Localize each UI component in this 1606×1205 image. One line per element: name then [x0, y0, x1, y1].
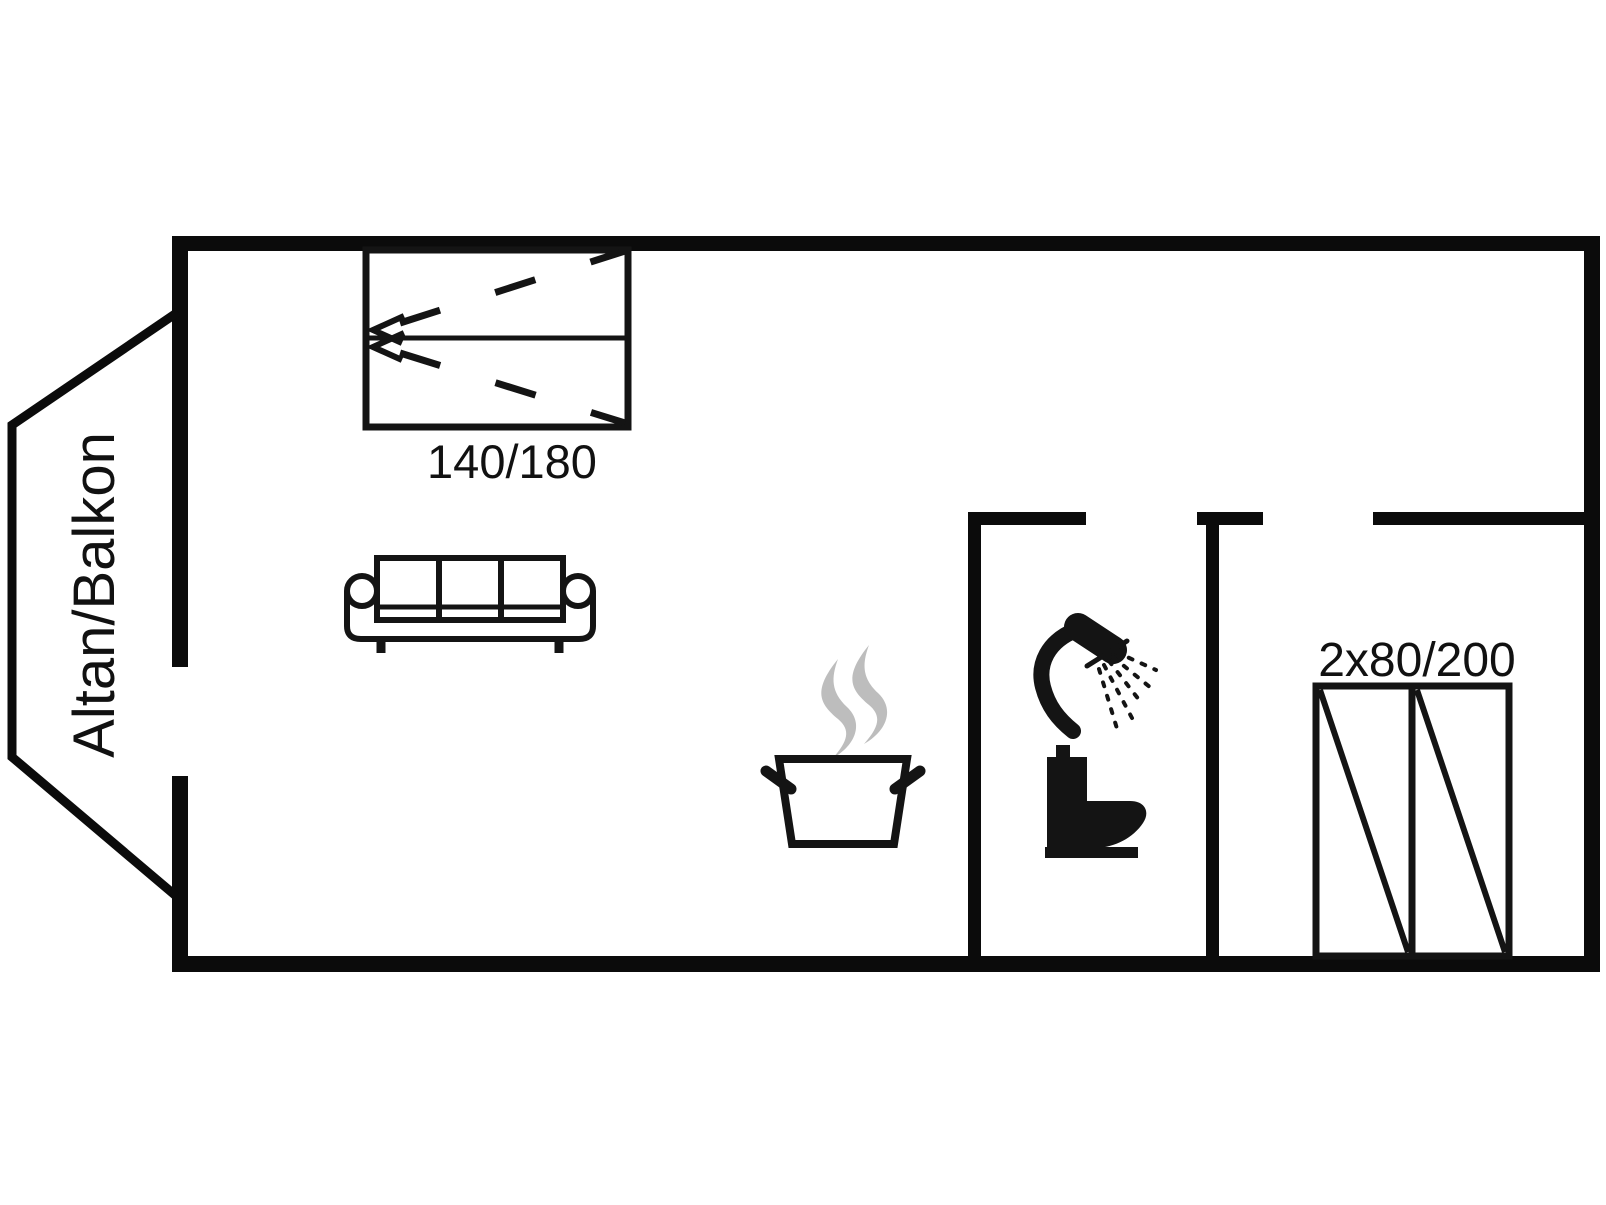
sofa-arm-left — [347, 576, 377, 606]
shower-head — [1078, 627, 1113, 650]
sofa-cushions — [377, 558, 563, 620]
wall-right — [1584, 236, 1600, 972]
pot-body — [779, 759, 907, 844]
bathroom-wall-left — [968, 512, 981, 956]
steaming-pot-icon — [766, 645, 920, 844]
toilet-bowl — [1087, 801, 1146, 848]
shower-hose — [1041, 630, 1076, 731]
shower-spray — [1099, 652, 1156, 732]
floor-plan-canvas: Altan/Balkon 140/180 — [0, 0, 1606, 1205]
double-bed-icon — [366, 250, 628, 427]
closet-room-wall-top — [1373, 512, 1600, 525]
toilet-icon — [1045, 745, 1146, 858]
double-wardrobe-icon — [1316, 686, 1509, 956]
wardrobe-size-label: 2x80/200 — [1318, 634, 1516, 687]
steam-left — [821, 659, 856, 758]
shower-head-icon — [1041, 627, 1156, 732]
toilet-tank — [1047, 757, 1087, 848]
wall-left-upper — [172, 236, 188, 667]
steam-right — [852, 645, 887, 744]
three-seat-sofa-icon — [347, 558, 593, 653]
bathroom-wall-right — [1206, 512, 1219, 956]
balcony-label: Altan/Balkon — [62, 432, 127, 758]
bed-size-label: 140/180 — [427, 435, 597, 488]
floor-plan-drawing: Altan/Balkon 140/180 — [0, 0, 1606, 1205]
wall-left-lower — [172, 776, 188, 972]
toilet-base — [1045, 847, 1138, 858]
sofa-arm-right — [563, 576, 593, 606]
bathroom-wall-top-left — [968, 512, 1086, 525]
